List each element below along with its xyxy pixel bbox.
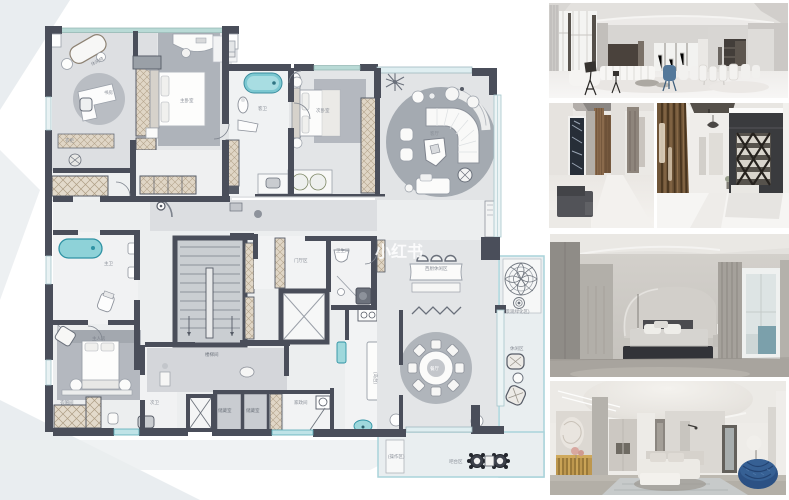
svg-text:次卧室: 次卧室 [316, 107, 330, 114]
svg-text:(操作区): (操作区) [388, 453, 405, 460]
svg-text:主人房: 主人房 [92, 335, 106, 342]
svg-text:卫生间: 卫生间 [336, 247, 350, 254]
svg-text:(岛台): (岛台) [372, 372, 379, 384]
svg-text:(景观绿化区): (景观绿化区) [504, 308, 530, 315]
svg-text:主卧室: 主卧室 [180, 97, 194, 104]
svg-text:休闲区: 休闲区 [510, 345, 524, 352]
svg-text:吧台区: 吧台区 [449, 458, 463, 465]
svg-text:楼梯间: 楼梯间 [205, 351, 219, 358]
svg-text:小红书: 小红书 [375, 242, 423, 261]
svg-text:家政间: 家政间 [294, 399, 308, 406]
svg-text:西厨休闲区: 西厨休闲区 [425, 265, 448, 272]
svg-text:衣帽间: 衣帽间 [60, 399, 74, 406]
svg-text:次卫: 次卫 [150, 399, 159, 406]
svg-text:主卫: 主卫 [104, 260, 113, 266]
svg-text:门厅区: 门厅区 [294, 257, 308, 264]
svg-text:书房: 书房 [104, 89, 113, 96]
svg-text:客卫: 客卫 [258, 105, 267, 112]
svg-text:储藏室: 储藏室 [218, 407, 232, 414]
svg-text:餐厅: 餐厅 [430, 365, 439, 372]
svg-text:衣柜: 衣柜 [65, 137, 74, 144]
svg-text:储藏室: 储藏室 [246, 407, 260, 414]
svg-text:客厅: 客厅 [430, 130, 439, 137]
